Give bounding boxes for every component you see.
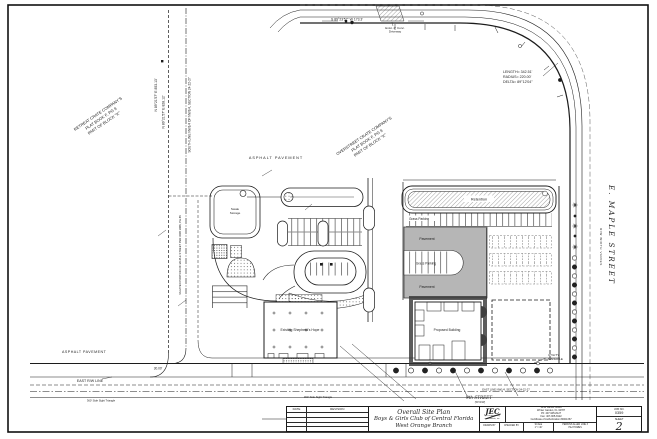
south-line-note: SOUTH LINE NW1/4 OF NW1/4, SECTION 24-22… (188, 77, 192, 153)
drawing-title-line3: West Orange Branch (395, 423, 452, 430)
existing-concrete-driveway (376, 6, 404, 21)
west-lot (210, 170, 375, 322)
retention-label: Retention (471, 198, 487, 202)
maple-rw-label: R/W WIDTH VARIES (599, 228, 603, 266)
existing-building (264, 302, 337, 364)
firm-certificate: Certificate of Authorization #0001367 (531, 419, 572, 422)
firm-block: JEC jec engineering consultants, inc. 12… (480, 407, 597, 431)
storage-label-line2: Storage (230, 211, 241, 215)
revision-header: REVISION (307, 407, 368, 412)
overstreet-plat-note: OVERSTREET CRATE COMPANY'S PLAT BOOK F, … (335, 115, 399, 165)
job-no-value: 0359 (597, 411, 641, 417)
east-rw-line-label: EAST R/W LINE (77, 379, 104, 383)
client-line2: P&J HOMES (568, 427, 581, 430)
curve-delta: DELTA= 89°12'04" (503, 80, 533, 84)
maple-street-label: E. MAPLE STREET (607, 184, 616, 285)
drawing-title: Overall Site Plan Boys & Girls Club of C… (369, 407, 480, 431)
curve-length: LENGTH= 342.51' (503, 70, 533, 74)
asphalt-pavement-left-label: ASPHALT PAVEMENT (62, 350, 107, 354)
job-block: JOB NO. 0359 SHEET 2 (597, 407, 641, 431)
sight-triangle-note-2: 360' Side Sight Triangle (87, 399, 116, 403)
vacated-street-note: VACATED PORTION OF MAPLE STREET PER ORB … (178, 215, 182, 295)
south-street-rw-label: (50' R/W) (475, 401, 486, 404)
drawn-by-label: DRAWN BY (483, 425, 495, 428)
scale-cell: SCALE 1" = 40' (524, 423, 554, 432)
scale-value: 1" = 40' (535, 427, 543, 430)
firm-address: 1218 James Street Winter Garden, FL 3478… (506, 407, 596, 422)
street-trees-south (393, 368, 552, 373)
west-bearing-1: N 89°21'57" E 853.13' (154, 78, 158, 111)
sheet-number: 2 (616, 421, 623, 432)
grass-parking-mid-label: Grass Parking (416, 262, 436, 266)
utility-manhole-line2: MANHOLE (548, 357, 563, 361)
dimension-30ft: 30.00' (154, 367, 163, 371)
checked-by-cell: CHECKED BY (500, 423, 524, 432)
street-trees-east (572, 203, 577, 359)
checked-by-label: CHECKED BY (504, 425, 519, 428)
revision-table: DATE REVISION (287, 407, 369, 431)
sight-triangle-note-1: 360' Side Sight Triangle (304, 395, 333, 399)
grass-parking-top-label: Grass Parking (409, 217, 429, 221)
south-street-label: 9th STREET (466, 395, 493, 400)
client-cell: PERKINS ALLEN LINE 3 P&J HOMES (554, 423, 596, 432)
curve-radius: RADIUS= 220.00' (503, 75, 532, 79)
proposed-building-label: Proposed Building (434, 328, 461, 332)
title-block: DATE REVISION Overall Site Plan Boys & G… (286, 406, 642, 432)
pavement-label-1: Pavement (419, 237, 434, 241)
north-boundary-dimension: S 89°23'57" W 173.3' (331, 18, 363, 22)
west-bearing-2: N 89°21'57" E 828.12' (162, 95, 166, 128)
drawing-title-line1: Overall Site Plan (397, 409, 450, 417)
driveway-note-line2: Driveway (389, 30, 402, 34)
proposed-building (411, 298, 546, 364)
existing-building-label: Existing Shepherd's Hope (281, 328, 320, 332)
asphalt-pavement-top-label: ASPHALT PAVEMENT (249, 156, 303, 160)
revision-date-header: DATE (287, 407, 307, 412)
site-plan-sheet: S 89°23'57" W 173.3' Exist. 4" Conc. Dri… (0, 0, 657, 439)
east-line-note: EAST LINE NW1/4, SECTION 24-22-27 (482, 388, 530, 392)
retreat-plat-note: RETREAT CRATE COMPANY'S PLAT BOOK F, PG … (73, 96, 130, 141)
drawn-by-cell: DRAWN BY (480, 423, 500, 432)
firm-logo: JEC jec engineering consultants, inc. (480, 407, 506, 422)
drawing-title-line2: Boys & Girls Club of Central Florida (374, 416, 473, 423)
west-boundary-lines (150, 8, 212, 377)
pavement-label-2: Pavement (419, 285, 434, 289)
site-plan-drawing: S 89°23'57" W 173.3' Exist. 4" Conc. Dri… (0, 0, 657, 439)
